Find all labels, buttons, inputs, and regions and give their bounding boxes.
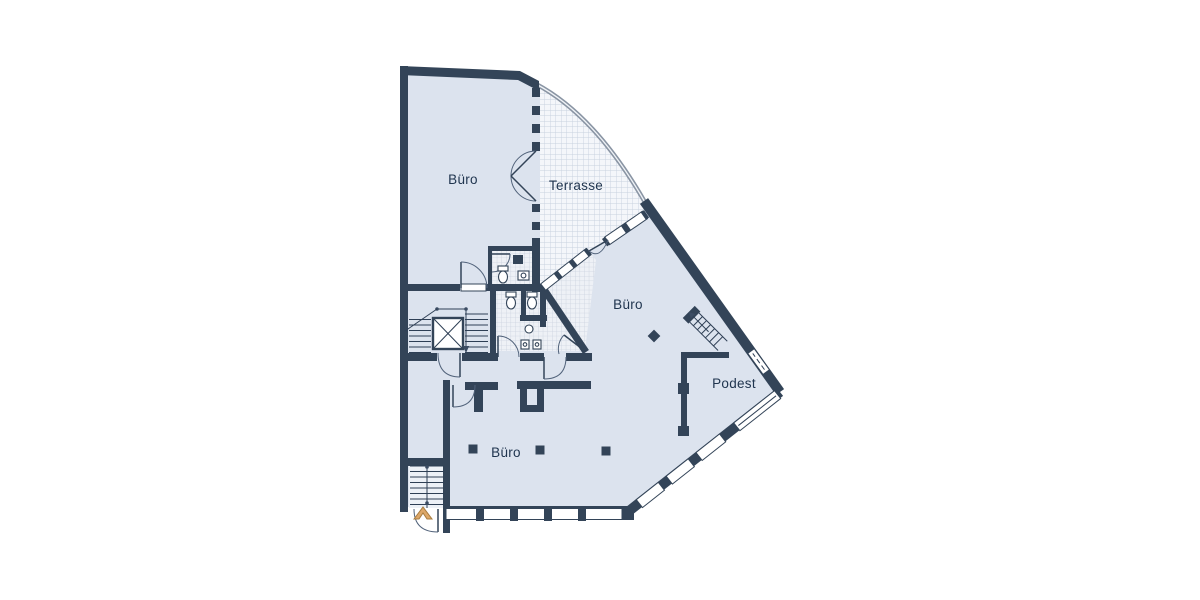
room-label-terrasse: Terrasse [549, 178, 603, 193]
floor-plan-canvas: Büro Terrasse Büro Podest Büro [0, 0, 1200, 600]
bottom-window-band [446, 507, 622, 521]
column [536, 446, 545, 455]
room-label-buero-middle: Büro [613, 297, 643, 312]
room-label-buero-bottom: Büro [491, 445, 521, 460]
elevator-icon [433, 318, 463, 349]
sink-icon [525, 325, 533, 333]
room-label-podest: Podest [712, 376, 756, 391]
sink-icon [518, 271, 529, 280]
toilet-icon [498, 266, 508, 283]
column [602, 447, 611, 456]
urinal-icon [533, 340, 541, 349]
urinal-icon [521, 340, 529, 349]
entrance-arrow-icon [414, 507, 432, 519]
floor-plan-page: Büro Terrasse Büro Podest Büro [0, 0, 1200, 600]
toilet-icon [527, 292, 537, 309]
duct-block [513, 255, 523, 264]
door-threshold [461, 284, 486, 291]
room-label-buero-top: Büro [448, 172, 478, 187]
column [469, 445, 478, 454]
toilet-icon [506, 292, 516, 309]
exterior-stair-top-wall [400, 458, 450, 466]
podest-top-wall [681, 352, 729, 358]
